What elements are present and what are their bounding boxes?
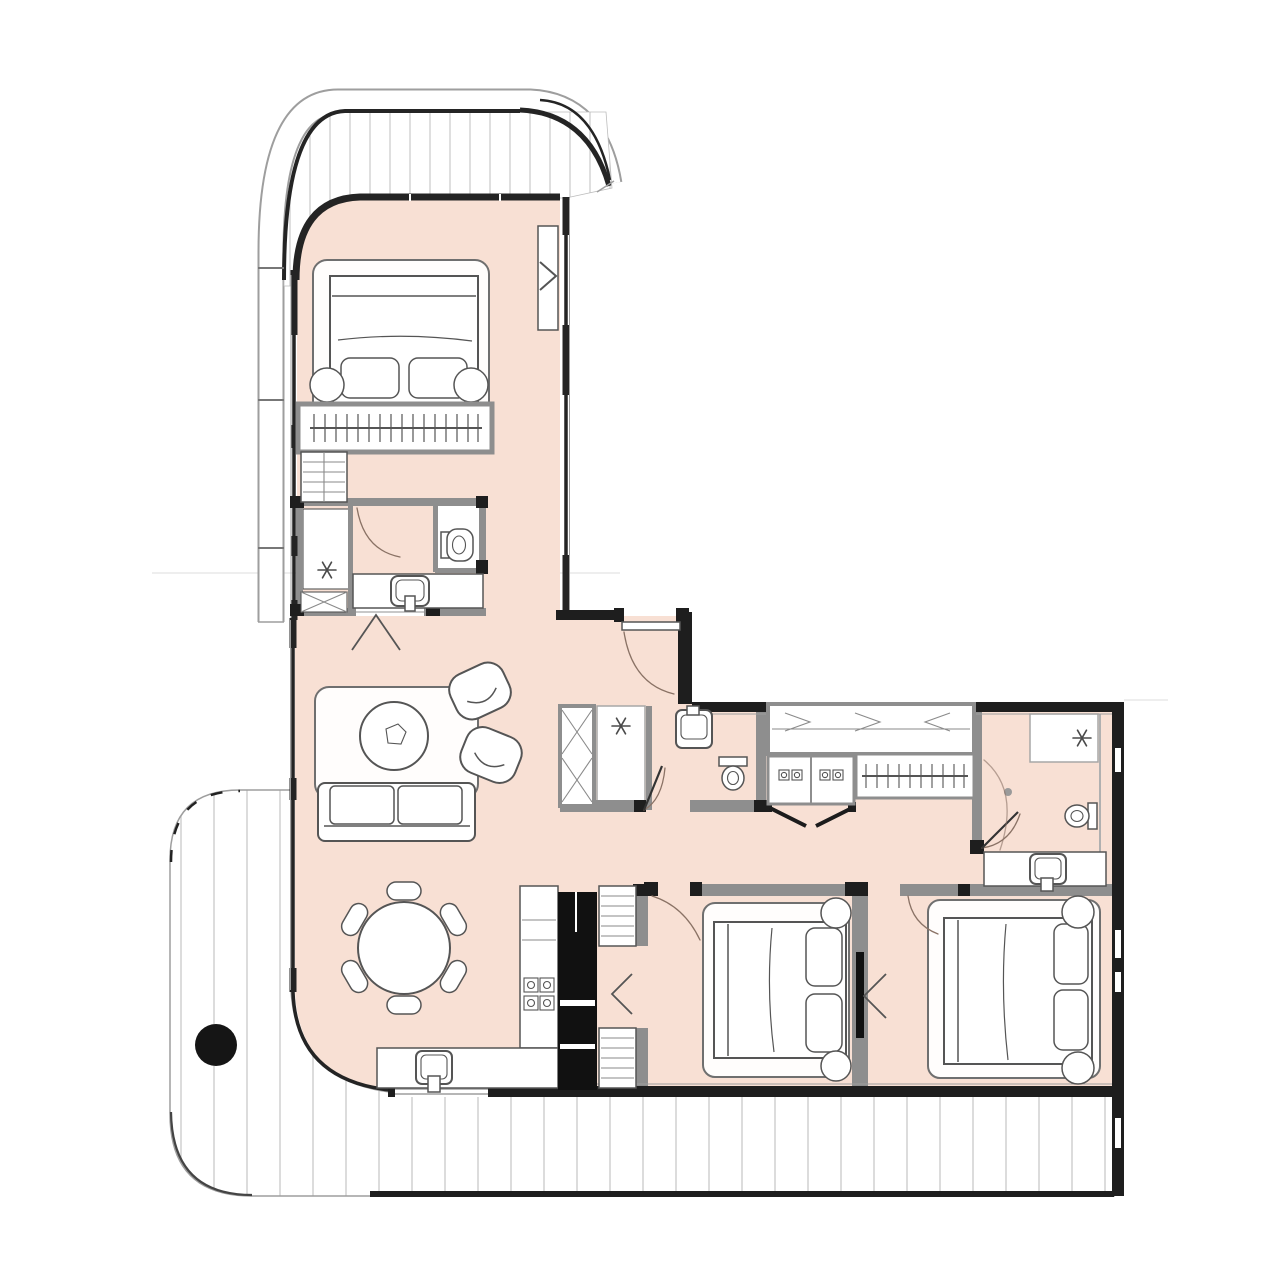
toilet-2: [719, 757, 747, 790]
nightstand: [310, 368, 344, 402]
vanity-1: [353, 574, 483, 611]
tall-x-cabinet: [560, 706, 594, 806]
toilet-1: [441, 529, 473, 561]
pillow: [1054, 924, 1088, 984]
entrance-door-leaf: [622, 622, 680, 630]
wall-basin-2: [676, 706, 712, 748]
shelf-unit: [301, 452, 347, 502]
kitchen-counter-bottom: [377, 1048, 558, 1088]
wall-tv-unit: [538, 226, 558, 330]
dining-table: [358, 902, 450, 994]
toilet-3: [1065, 803, 1097, 829]
pillow: [806, 928, 842, 986]
pillow: [341, 358, 399, 398]
pillow: [1054, 990, 1088, 1050]
bedroom-2-bed: [714, 898, 851, 1081]
bedroom-3-bed: [944, 896, 1094, 1084]
overhead-cabinet-row: [768, 704, 974, 754]
appliance-tower: [599, 1028, 636, 1088]
sofa: [318, 783, 475, 841]
wardrobe-rail: [298, 404, 492, 452]
structural-column: [195, 1024, 237, 1066]
nightstand: [821, 898, 851, 928]
vanity-3: [984, 852, 1106, 891]
tall-black-unit: [558, 892, 597, 1090]
shower-1-floor: [303, 509, 349, 589]
bedroom-1-bed: [310, 276, 488, 404]
nightstand: [821, 1051, 851, 1081]
nightstand: [1062, 1052, 1094, 1084]
nightstand: [454, 368, 488, 402]
nightstand: [1062, 896, 1094, 928]
floor-plan-drawing: [0, 0, 1280, 1280]
walk-in-wardrobe-rail: [856, 754, 974, 798]
shaft-floor: [597, 706, 645, 806]
floor-plan-page: [0, 0, 1280, 1280]
kitchen-counter-side: [520, 886, 558, 1048]
appliance-tower: [599, 886, 636, 946]
pillow: [806, 994, 842, 1052]
x-cabinet-small: [301, 592, 347, 612]
